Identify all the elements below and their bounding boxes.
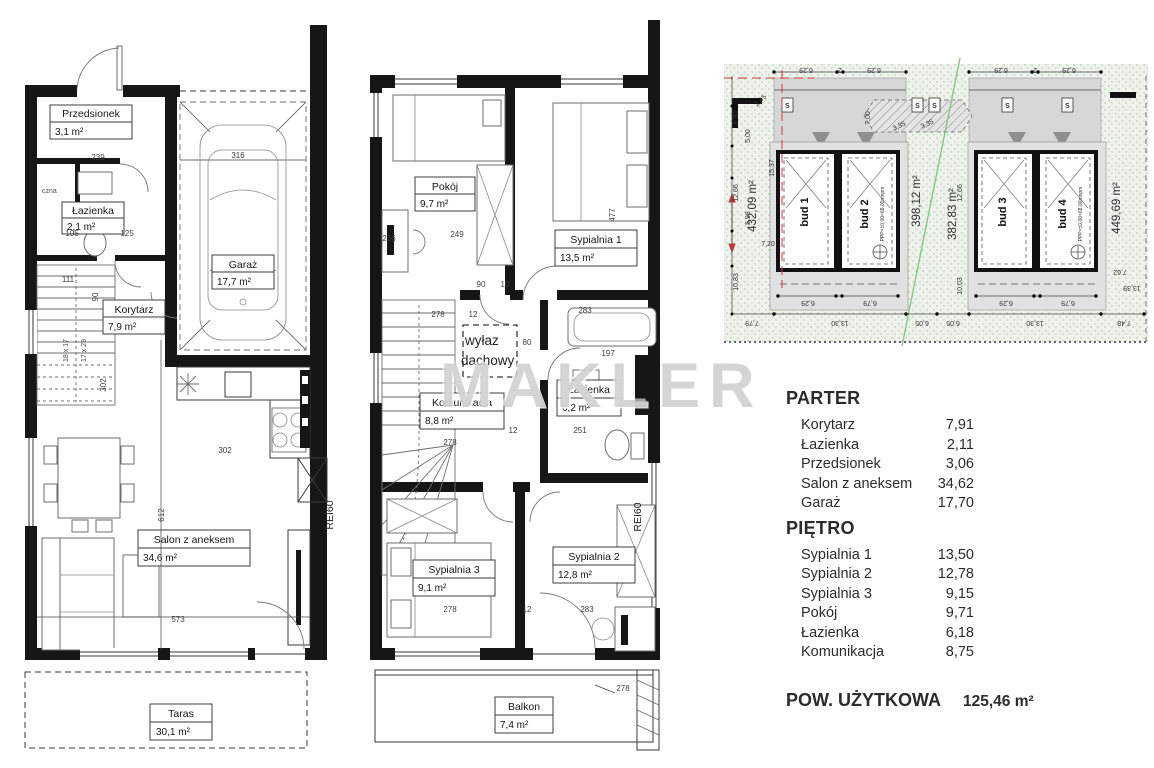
garage-markings [180,102,306,350]
dim: 251 [573,426,587,435]
dim: 283 [580,605,594,614]
table-row: Pokój9,71 [786,604,974,624]
dim: 111 [62,275,75,284]
room-name: Łazienka [801,624,859,644]
dim: 249 [450,230,464,239]
dim: 10 [501,280,510,289]
site-dim: 6,05 [915,319,929,326]
svg-text:Sypialnia 3: Sypialnia 3 [428,564,480,576]
room-label-techniczna: czna [42,188,57,195]
section-title-parter: PARTER [786,388,1076,409]
dim: 125 [120,229,134,238]
table-row: Sypialnia 212,78 [786,565,974,585]
dim: 105 [65,229,79,238]
total-label: POW. UŻYTKOWA [786,690,941,711]
svg-text:9,7 m²: 9,7 m² [420,199,449,210]
wardrobe-syp3 [387,499,457,533]
single-bed [393,95,505,161]
site-dim: 8,30 [733,111,740,125]
dim: 278 [443,605,457,614]
site-dim: 7,48 [1117,319,1131,326]
svg-text:Salon z aneksem: Salon z aneksem [154,534,235,546]
room-area: 6,18 [946,624,974,644]
room-label-przedsionek: Przedsionek 3,1 m² [50,105,132,139]
site-dim: 6,29 [1062,66,1076,73]
room-label-sypialnia3: Sypialnia 3 9,1 m² [413,560,495,596]
dim: 239 [91,153,105,162]
building-pair-1: bud 1 bud 2 PPP=±0,00=68,00mnpm [770,142,908,310]
room-name: Salon z aneksem [801,475,912,495]
table-row: Komunikacja8,75 [786,643,974,663]
svg-text:Pokój: Pokój [432,181,458,193]
site-dim: 6,29 [801,299,815,306]
roof-hatch: wyłaz dachowy [461,325,517,377]
svg-text:12,8 m²: 12,8 m² [558,570,593,581]
dim: 12 [523,605,532,614]
sink-icon [177,373,199,395]
section-title-pietro: PIĘTRO [786,518,1076,539]
svg-text:7,9 m²: 7,9 m² [108,322,137,333]
parcel-area-4: 449,69 m² [1111,182,1123,234]
area-table: PARTER Korytarz7,91 Łazienka2,11 Przedsi… [786,388,1076,711]
svg-text:7,4 m²: 7,4 m² [500,720,529,731]
svg-text:30,1 m²: 30,1 m² [156,727,191,738]
dim: 302 [99,378,108,392]
site-dim: 6,29 [999,299,1013,306]
dim: 90 [91,292,100,301]
site-dim: 10,03 [957,277,964,295]
table-row: Sypialnia 39,15 [786,585,974,605]
svg-text:Sypialnia 2: Sypialnia 2 [568,551,620,563]
table-row: Łazienka2,11 [786,436,974,456]
dim: 283 [578,306,592,315]
dim: 316 [231,151,245,160]
sofa [42,538,114,650]
room-area: 7,91 [946,416,974,436]
stairs-note-risers: 18 x 17 [63,339,70,362]
stairs-note-treads: 17 x 29 [81,339,88,362]
entry-door [77,46,122,90]
site-dim: 6,79 [863,299,877,306]
driveway [969,78,1101,142]
floor-plan-sheet: 18 x 17 17 x 29 [0,0,1154,768]
dim: 573 [171,615,185,624]
toilet-upper [605,430,644,460]
svg-text:Łazienka: Łazienka [568,384,610,396]
site-dim: 13,30 [1026,319,1044,326]
svg-text:Korytarz: Korytarz [114,304,153,316]
room-name: Przedsionek [801,455,881,475]
dim: 278 [616,684,630,693]
site-dim: 10,83 [733,273,740,291]
room-label-taras: Taras 30,1 m² [150,704,212,740]
svg-text:Komunikacja: Komunikacja [432,397,492,409]
window [25,438,37,526]
site-dim: 7,20 [761,241,775,248]
total-value: 125,46 m² [963,693,1034,711]
svg-text:S: S [1065,103,1070,110]
room-area: 9,15 [946,585,974,605]
room-name: Korytarz [801,416,855,436]
table-row: Korytarz7,91 [786,416,974,436]
dim: 80 [523,338,532,347]
building-label-3: bud 3 [997,197,1009,226]
site-dim: 7,79 [745,319,759,326]
room-area: 9,71 [946,604,974,624]
dim: 90 [477,280,486,289]
room-label-sypialnia2: Sypialnia 2 12,8 m² [553,547,635,583]
dim: 197 [601,349,615,358]
svg-text:S: S [932,103,937,110]
parcel-area-2: 398,12 m² [911,175,923,227]
svg-text:Garaż: Garaż [229,259,258,271]
site-dim: 6,05 [946,319,960,326]
room-name: Garaż [801,494,841,514]
site-dim: 15,37 [769,159,776,177]
room-area: 3,06 [946,455,974,475]
pietro-floor-plan: wyłaz dachowy [365,15,675,755]
dim: 12 [469,310,478,319]
svg-text:Taras: Taras [168,708,194,720]
room-name: Pokój [801,604,837,624]
room-label-komunikacja: Komunikacja 8,8 m² [420,393,504,429]
double-bed [553,103,649,221]
dim: 278 [443,438,457,447]
svg-text:13,5 m²: 13,5 m² [560,253,595,264]
building-label-1: bud 1 [799,197,811,226]
svg-text:8,8 m²: 8,8 m² [425,416,454,427]
room-label-lazienka-up: Łazienka 6,2 m² [557,380,621,416]
site-dim: 2 [838,66,842,73]
table-row: Sypialnia 113,50 [786,546,974,566]
site-dim: 12,66 [733,184,740,202]
building-level-note: PPP=±0,00=68,00mnpm [1078,187,1084,242]
site-dim: 13,30 [831,319,849,326]
svg-text:17,7 m²: 17,7 m² [217,277,252,288]
room-name: Łazienka [801,436,859,456]
table-row: Przedsionek3,06 [786,455,974,475]
dim: 302 [218,446,232,455]
table-row: Garaż17,70 [786,494,974,514]
table-row: Łazienka6,18 [786,624,974,644]
room-area: 2,11 [947,436,974,456]
svg-text:Sypialnia 1: Sypialnia 1 [570,234,622,246]
parter-floor-plan: 18 x 17 17 x 29 [20,10,340,755]
room-label-pokoj: Pokój 9,7 m² [415,177,475,211]
svg-text:34,6 m²: 34,6 m² [143,553,178,564]
site-dim: 2 [1033,66,1037,73]
room-label-balkon: Balkon 7,4 m² [495,697,553,733]
kitchen [177,367,310,458]
room-label-garaz: Garaż 17,7 m² [212,255,274,289]
svg-text:S: S [1005,103,1010,110]
building-label-4: bud 4 [1057,198,1069,228]
room-name: Sypialnia 2 [801,565,872,585]
desk-syp2 [592,607,655,651]
dim: 612 [157,508,166,522]
area-table-section-pietro: PIĘTRO Sypialnia 113,50 Sypialnia 212,78… [786,518,1076,663]
svg-text:S: S [915,103,920,110]
site-dim: 12,66 [957,184,964,202]
building-label-2: bud 2 [859,199,871,228]
fire-rating-label: REI60 [632,502,644,531]
room-area: 13,50 [938,546,974,566]
site-dim: 5,98 [745,211,752,225]
area-table-section-parter: PARTER Korytarz7,91 Łazienka2,11 Przedsi… [786,388,1076,514]
fence [1110,92,1136,98]
room-label-sypialnia1: Sypialnia 1 13,5 m² [555,230,637,266]
dim: 477 [608,208,617,222]
site-dim: 7,62 [1113,268,1127,275]
wardrobe-pokoj [477,165,513,265]
site-dim: 7,00 [865,111,872,125]
svg-text:9,1 m²: 9,1 m² [418,583,447,594]
room-area: 17,70 [938,494,974,514]
room-area: 12,78 [938,565,974,585]
svg-text:Balkon: Balkon [508,701,540,713]
dim: 236 [382,234,396,243]
dim: 278 [431,310,445,319]
dim: 12 [509,426,518,435]
site-dim: 6,29 [799,66,813,73]
svg-text:3,1 m²: 3,1 m² [55,127,84,138]
svg-text:Przedsionek: Przedsionek [62,108,121,120]
site-dim: 6,79 [1061,299,1075,306]
building-pair-2: bud 3 bud 4 PPP=±0,00=68,00mnpm [968,142,1106,310]
room-area: 34,62 [938,475,974,495]
site-plan: S S S S S bud 1 bud 2 PPP=±0,00=68,00mnp… [722,56,1154,348]
room-name: Komunikacja [801,643,884,663]
room-area: 8,75 [946,643,974,663]
svg-text:Łazienka: Łazienka [72,205,114,217]
dining-table [44,438,134,532]
site-dim: 6,29 [994,66,1008,73]
room-label-salon: Salon z aneksem 34,6 m² [138,530,250,566]
svg-text:S: S [785,103,790,110]
window [25,310,37,354]
site-dim: 13,39 [1123,284,1141,291]
usable-area-total: POW. UŻYTKOWA 125,46 m² [786,690,1076,711]
fire-rating-label: REI60 [324,500,336,529]
svg-text:6,2 m²: 6,2 m² [562,403,591,414]
roof-hatch-label-1: wyłaz [464,333,499,348]
table-row: Salon z aneksem34,62 [786,475,974,495]
building-level-note: PPP=±0,00=68,00mnpm [880,187,886,242]
room-label-korytarz: Korytarz 7,9 m² [103,300,165,334]
room-name: Sypialnia 1 [801,546,872,566]
room-name: Sypialnia 3 [801,585,872,605]
site-dim: 6,29 [867,66,881,73]
roof-hatch-label-2: dachowy [461,353,515,368]
site-dim: 5,00 [745,129,752,143]
